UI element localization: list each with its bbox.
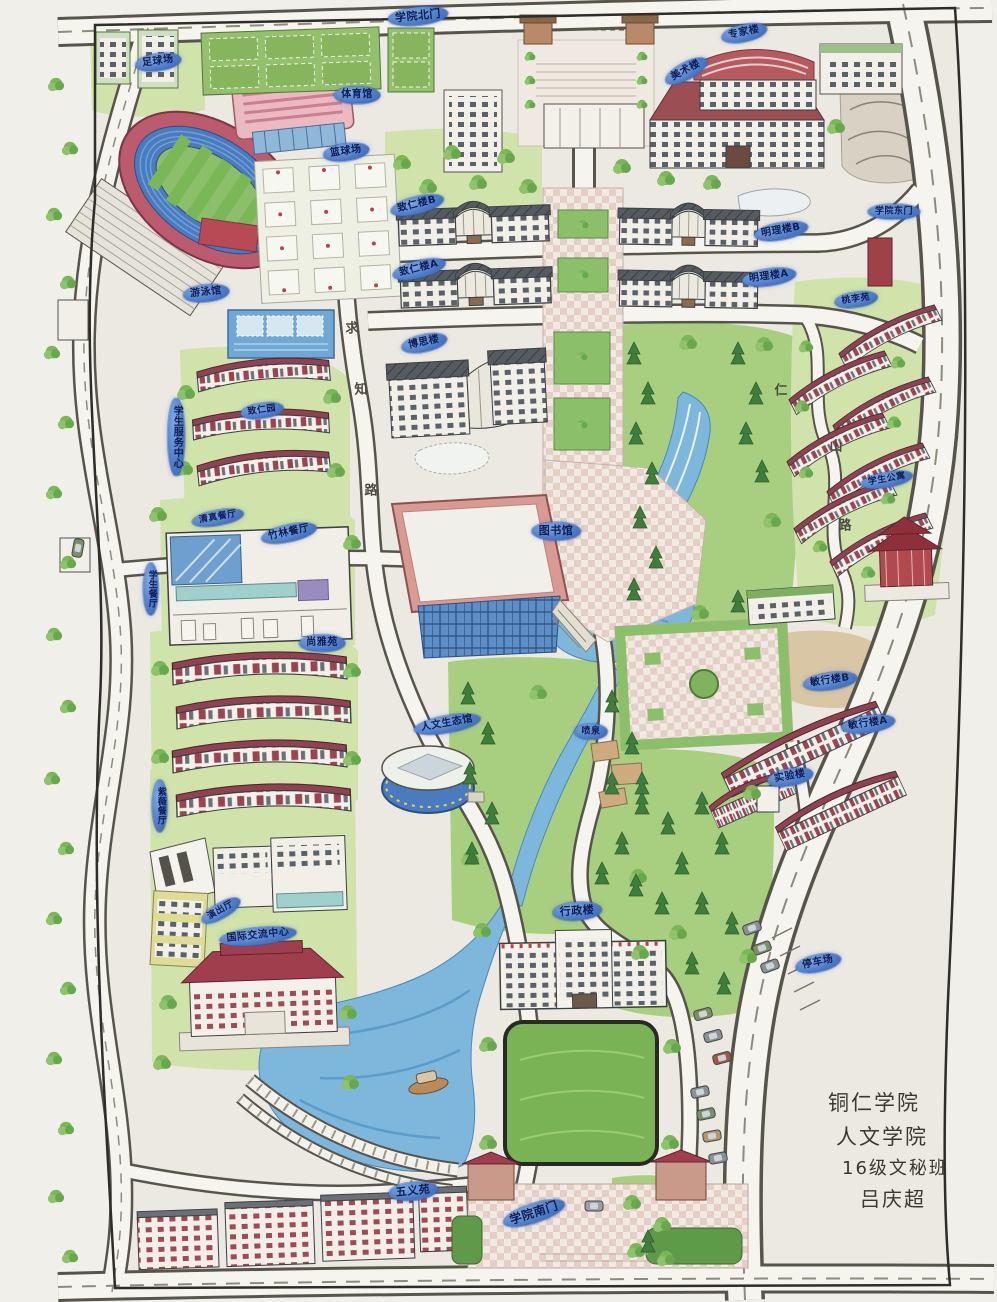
label-student-apartment: 学生公寓 [860, 468, 914, 492]
label-laboratory-building: 实验楼 [766, 765, 814, 789]
label-ziwei-canteen: 紫薇餐厅 [152, 780, 167, 832]
label-zhulin-canteen: 竹林餐厅 [260, 519, 318, 547]
road-name-glyph: 路 [838, 515, 851, 534]
label-east-gate: 学院东门 [868, 204, 920, 219]
label-south-gate: 学院南门 [501, 1194, 568, 1231]
road-name-glyph: 知 [354, 379, 367, 398]
signature-author: 吕庆超 [860, 1183, 949, 1215]
label-student-service-center: 学生服务中心 [168, 399, 185, 476]
label-taoli-garden: 桃李苑 [834, 289, 878, 310]
label-performance-hall: 演出厅 [199, 894, 244, 929]
road-name-glyph: 路 [364, 480, 377, 499]
label-fountain: 喷泉 [574, 724, 607, 739]
label-library: 图书馆 [532, 522, 581, 540]
label-minxing-building-a: 敏行楼A [840, 712, 896, 736]
signature-class: 16级文秘班 [842, 1154, 949, 1183]
label-minxing-building-b: 敏行楼B [802, 669, 857, 693]
label-student-canteen: 学生餐厅 [143, 563, 158, 615]
label-zhiren-building-a: 致仁楼A [391, 254, 447, 283]
label-shangya-garden: 尚雅苑 [299, 635, 345, 652]
signature-school: 铜仁学院 [828, 1086, 949, 1120]
label-bosi-building: 博思楼 [400, 330, 448, 356]
label-art-building: 美术楼 [662, 53, 710, 89]
label-gymnasium: 体育馆 [334, 87, 380, 104]
label-intl-exchange-center: 国际交流中心 [219, 924, 297, 948]
label-mingli-building-a: 明理楼A [741, 265, 797, 289]
label-football-field: 足球场 [134, 51, 181, 74]
road-name-glyph: 山 [829, 436, 842, 455]
label-zhiren-building-b: 致仁楼B [389, 191, 445, 220]
label-zhiren-garden: 致仁园 [240, 400, 284, 421]
signature-block: 铜仁学院 人文学院 16级文秘班 吕庆超 [828, 1086, 949, 1216]
label-expert-building: 专家楼 [720, 20, 768, 46]
road-name-glyph: 求 [345, 318, 358, 337]
label-north-gate: 学院北门 [387, 4, 449, 28]
label-basketball-court: 篮球场 [322, 141, 369, 164]
label-parking-lot: 停车场 [794, 950, 842, 976]
label-humanities-eco-hall: 人文生态馆 [413, 710, 481, 738]
label-admin-building: 行政楼 [552, 901, 602, 922]
campus-map: 学院北门美术楼专家楼足球场体育馆篮球场游泳馆致仁楼B明理楼B致仁楼A明理楼A博思… [0, 0, 997, 1302]
label-swimming-pool: 游泳馆 [183, 282, 230, 303]
label-wuyi-garden: 五义苑 [388, 1180, 438, 1203]
road-name-glyph: 仁 [774, 380, 787, 399]
signature-college: 人文学院 [836, 1120, 949, 1154]
label-mingli-building-b: 明理楼B [753, 218, 809, 244]
label-qingzhen-canteen: 清真餐厅 [191, 506, 245, 530]
